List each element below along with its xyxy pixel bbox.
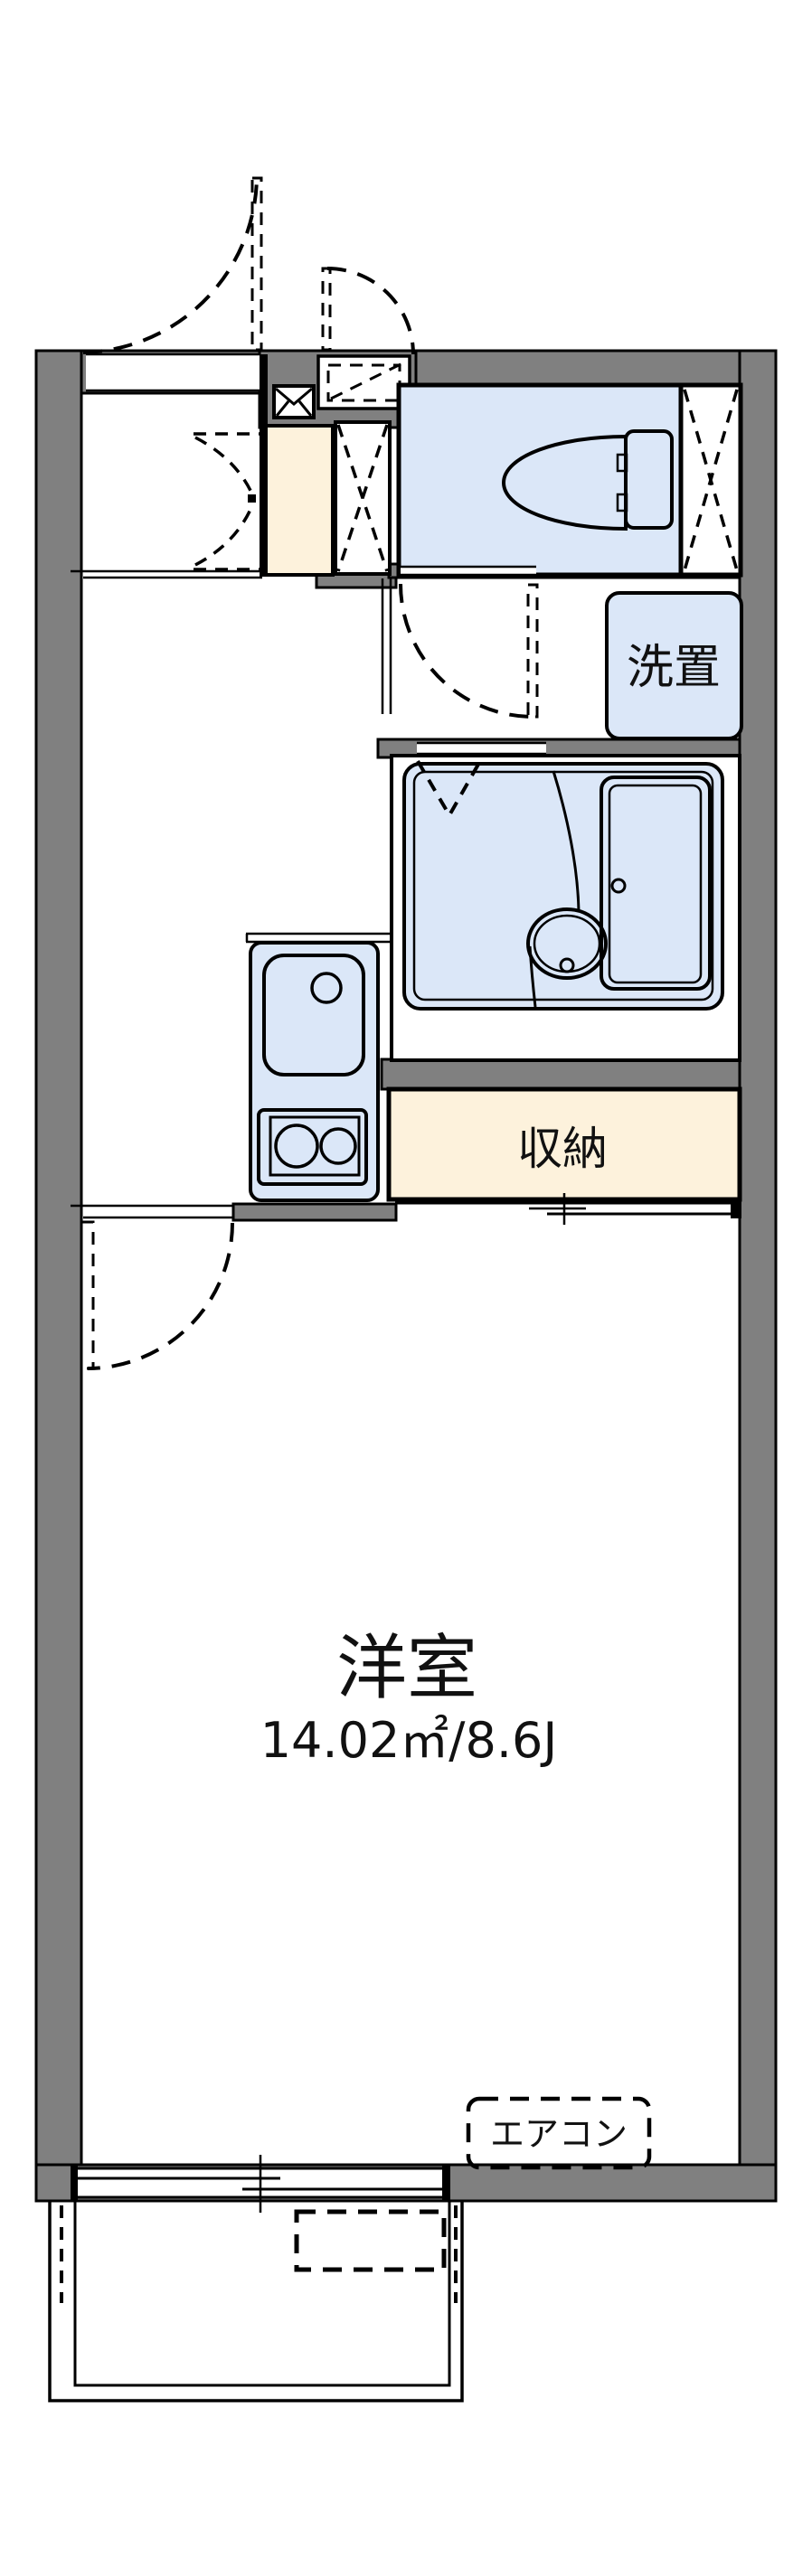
main-room-label: 洋室: [336, 1628, 477, 1709]
storage-closet: 収納: [389, 1089, 740, 1199]
aircon-space: エアコン: [468, 2099, 649, 2167]
pipe-shaft-icon: [681, 385, 741, 575]
unit-bath: [404, 764, 722, 1009]
balcony-equipment-area: [297, 2212, 444, 2270]
entrance-opening: [86, 353, 260, 391]
balcony: [50, 2202, 462, 2401]
entry-pipe-shaft-icon: [335, 422, 390, 574]
bathroom-door-opening: [417, 742, 546, 755]
floor-plan: 洗置: [0, 0, 812, 2576]
floor-plan-drawing: 洗置: [0, 0, 812, 2576]
main-room-door-swing: [81, 1222, 232, 1368]
meter-box-icon: [318, 356, 410, 409]
mailbox-icon: [274, 386, 314, 418]
toilet-room: [399, 385, 681, 575]
washer-space-label: 洗置: [627, 641, 721, 695]
washer-space: 洗置: [607, 593, 741, 738]
shoe-area: [266, 426, 333, 575]
main-room-size-label: 14.02㎡/8.6J: [260, 1712, 558, 1769]
aircon-label: エアコン: [490, 2114, 628, 2154]
toilet-door-swing: [401, 584, 537, 717]
meter-box-door-swing: [323, 268, 413, 354]
main-room-door-opening: [71, 1206, 233, 1217]
entrance-closet-doors: [194, 434, 260, 569]
toilet-door-opening: [401, 566, 536, 576]
kitchen-unit: [246, 934, 392, 1200]
storage-label: 収納: [517, 1123, 608, 1175]
bathroom: [392, 756, 740, 1060]
entrance-door-swing: [83, 178, 261, 353]
